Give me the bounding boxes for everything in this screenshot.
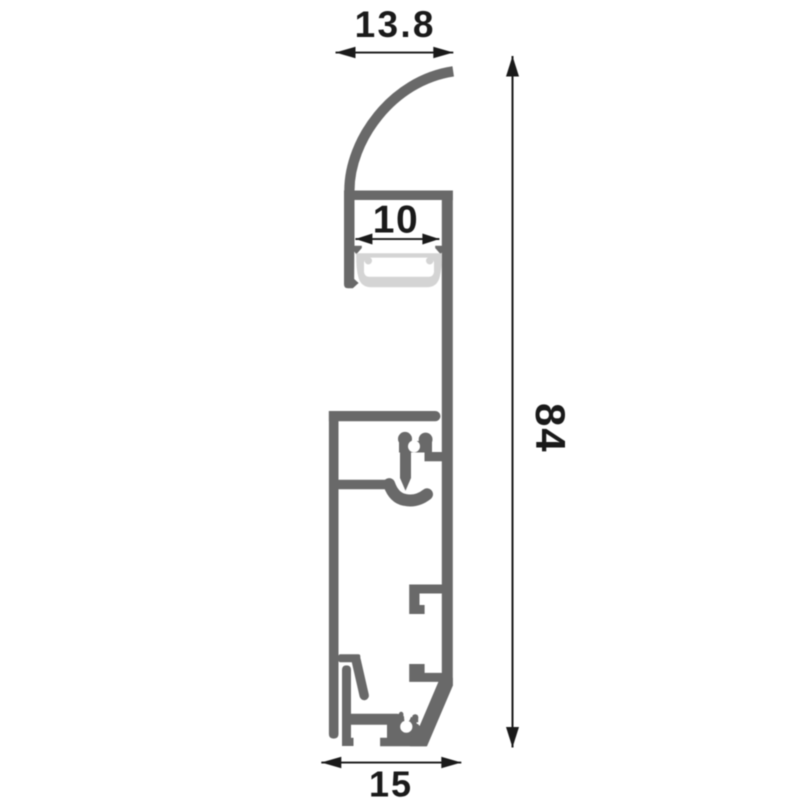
svg-text:10: 10: [373, 199, 419, 242]
svg-text:84: 84: [527, 403, 574, 453]
svg-text:15: 15: [369, 764, 413, 800]
svg-text:13.8: 13.8: [355, 4, 436, 45]
